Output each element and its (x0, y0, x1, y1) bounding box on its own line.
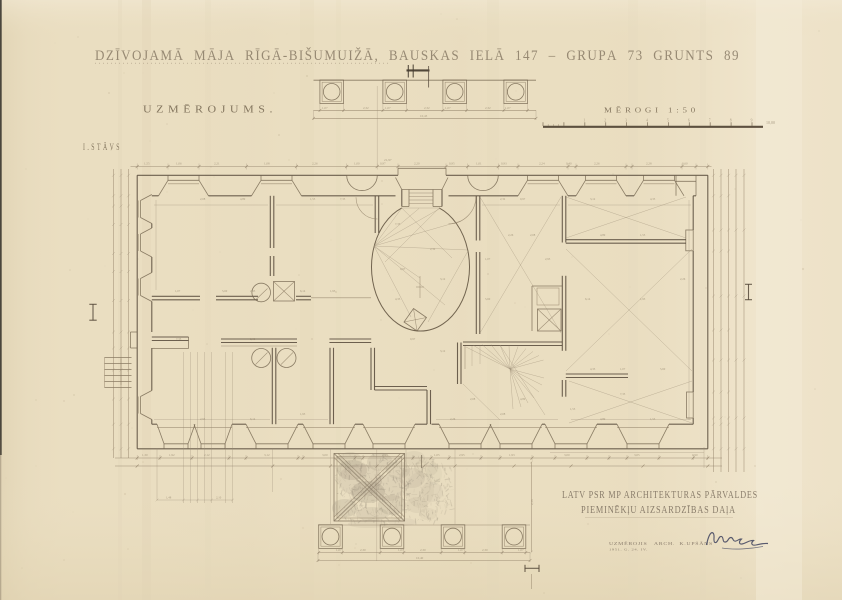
svg-text:9: 9 (751, 119, 753, 123)
svg-text:LATV PSR MP ARCHITEKTURAS PĀRV: LATV PSR MP ARCHITEKTURAS PĀRVALDES (562, 490, 758, 501)
svg-text:6: 6 (688, 119, 690, 123)
svg-text:I.STĀVS: I.STĀVS (83, 142, 122, 153)
svg-text:2: 2 (604, 119, 606, 123)
svg-text:8: 8 (730, 119, 732, 123)
svg-text:3: 3 (625, 119, 627, 123)
svg-text:DZĪVOJAMĀ MĀJA RĪGĀ-BIŠUMUIŽĀ,: DZĪVOJAMĀ MĀJA RĪGĀ-BIŠUMUIŽĀ, BAUSKAS I… (95, 47, 740, 64)
svg-text:7: 7 (709, 119, 711, 123)
svg-text:PIEMINĒKļU AIZSARDZĪBAS DAļA: PIEMINĒKļU AIZSARDZĪBAS DAļA (581, 505, 736, 516)
svg-text:UZMĒROJIS ARCH. K.UPŠĀNS: UZMĒROJIS ARCH. K.UPŠĀNS (609, 541, 713, 546)
svg-text:1: 1 (583, 119, 585, 123)
svg-text:5: 5 (667, 119, 669, 123)
svg-text:4: 4 (646, 119, 648, 123)
svg-text:UZMĒROJUMS.: UZMĒROJUMS. (143, 105, 277, 116)
svg-text:MĒROGI 1:50: MĒROGI 1:50 (604, 107, 699, 115)
svg-text:1951. G. 24. IV.: 1951. G. 24. IV. (609, 548, 648, 552)
